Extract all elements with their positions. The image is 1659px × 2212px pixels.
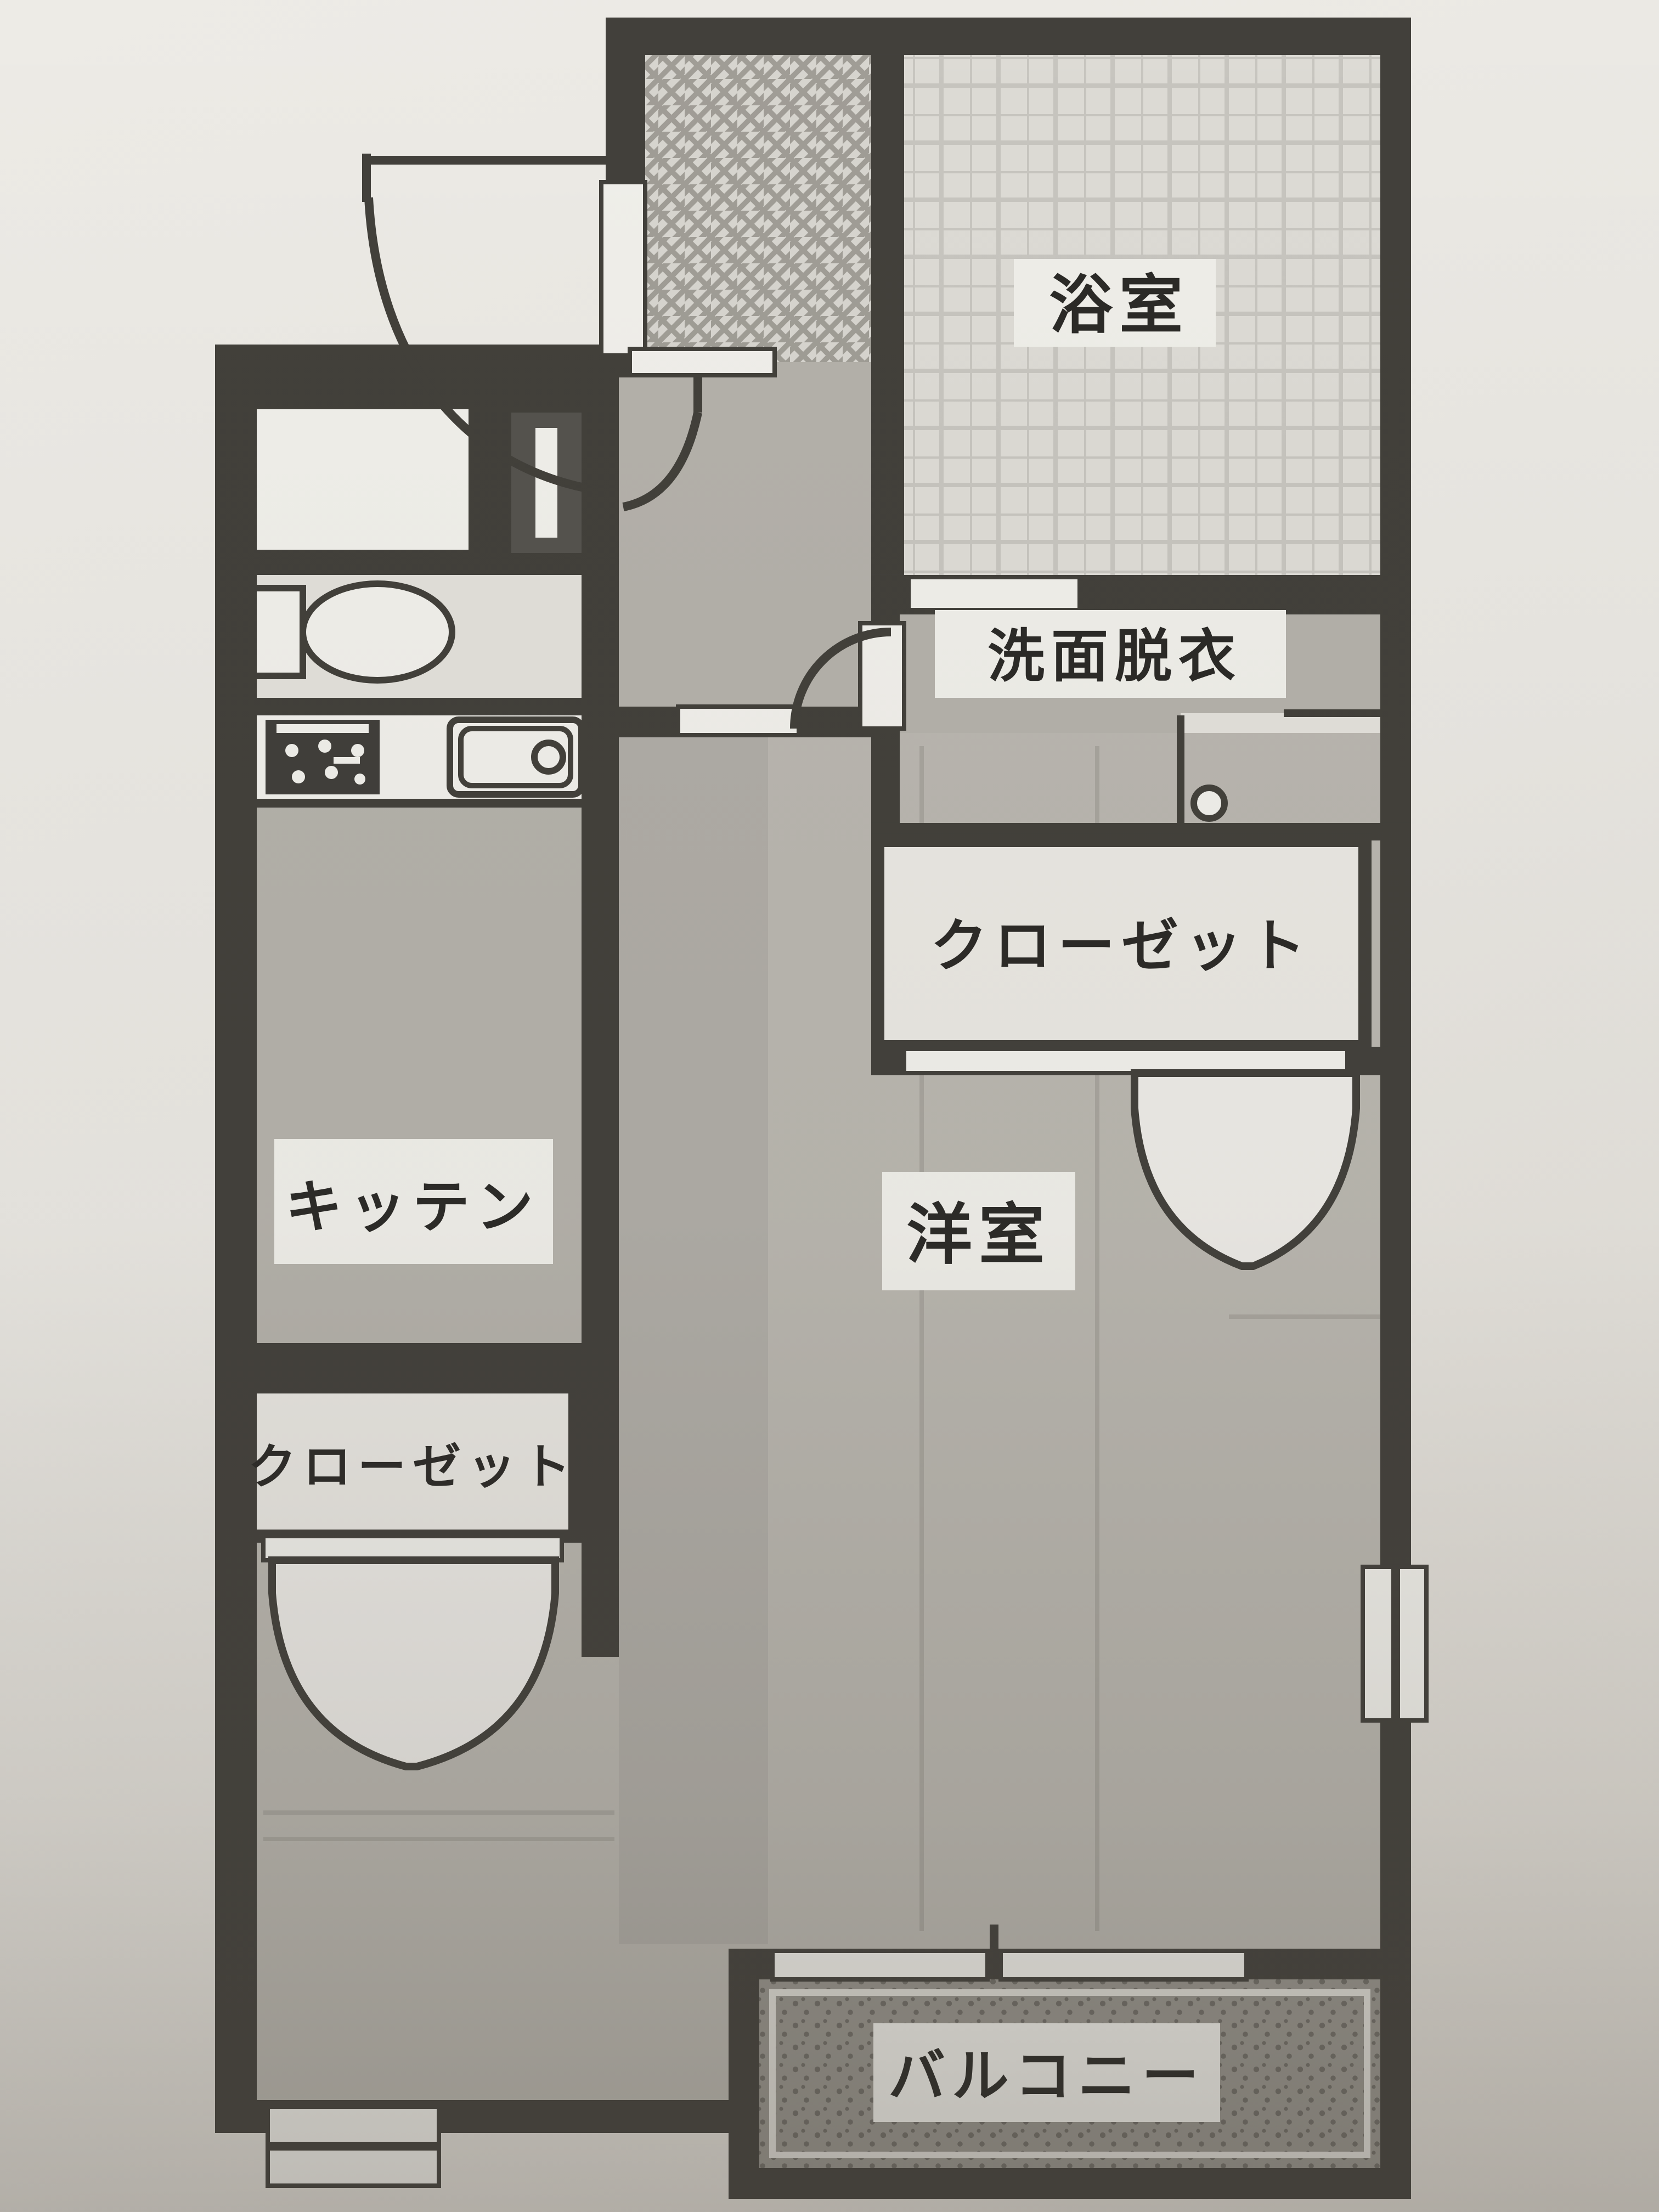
photo-vignette (0, 0, 1659, 2212)
floor-plan: 浴室 洗面脱衣 クローゼット 洋室 キッテン クローゼット バルコニー (0, 0, 1659, 2212)
floor-plan-photo: 浴室 洗面脱衣 クローゼット 洋室 キッテン クローゼット バルコニー (0, 0, 1659, 2212)
